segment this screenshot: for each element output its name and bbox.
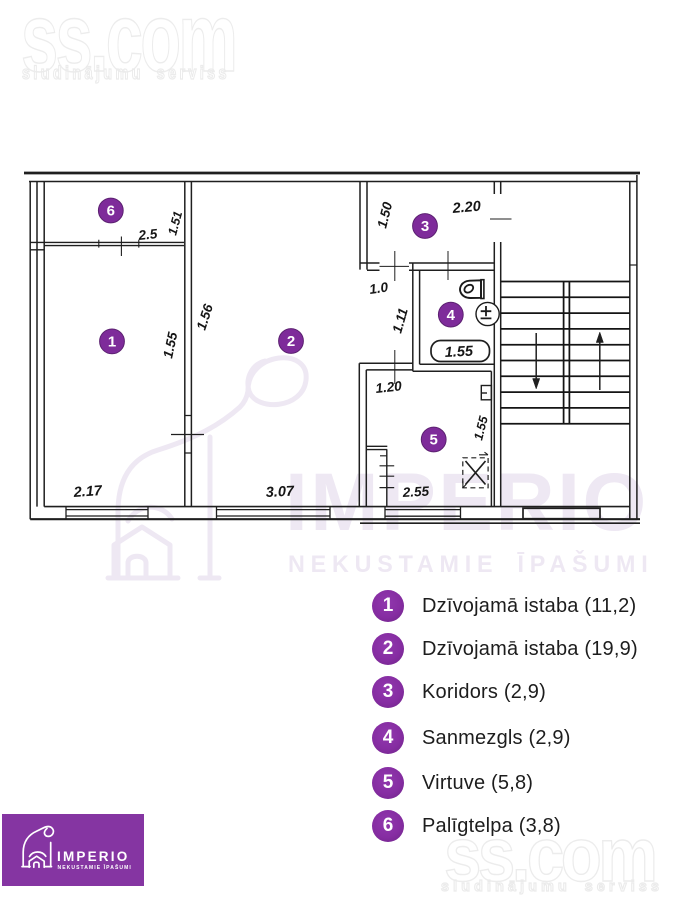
svg-text:1.51: 1.51 xyxy=(165,210,185,237)
svg-text:3: 3 xyxy=(421,218,429,235)
svg-text:1.0: 1.0 xyxy=(368,279,389,297)
svg-text:6: 6 xyxy=(107,203,115,220)
svg-text:1.56: 1.56 xyxy=(194,302,217,332)
svg-text:2: 2 xyxy=(287,333,295,350)
svg-text:1.50: 1.50 xyxy=(374,200,395,230)
svg-text:5: 5 xyxy=(430,432,438,449)
svg-text:1.20: 1.20 xyxy=(375,378,403,396)
svg-text:1.55: 1.55 xyxy=(160,330,180,359)
svg-text:2.20: 2.20 xyxy=(451,199,482,217)
svg-text:1.55: 1.55 xyxy=(444,343,474,361)
svg-text:3.07: 3.07 xyxy=(265,483,295,501)
svg-text:4: 4 xyxy=(447,307,456,324)
svg-text:2.17: 2.17 xyxy=(72,483,103,501)
svg-text:1.11: 1.11 xyxy=(389,306,410,334)
svg-text:1.55: 1.55 xyxy=(471,414,491,442)
svg-text:1: 1 xyxy=(108,334,116,351)
svg-text:2.5: 2.5 xyxy=(137,226,159,243)
svg-text:2.55: 2.55 xyxy=(401,484,430,500)
